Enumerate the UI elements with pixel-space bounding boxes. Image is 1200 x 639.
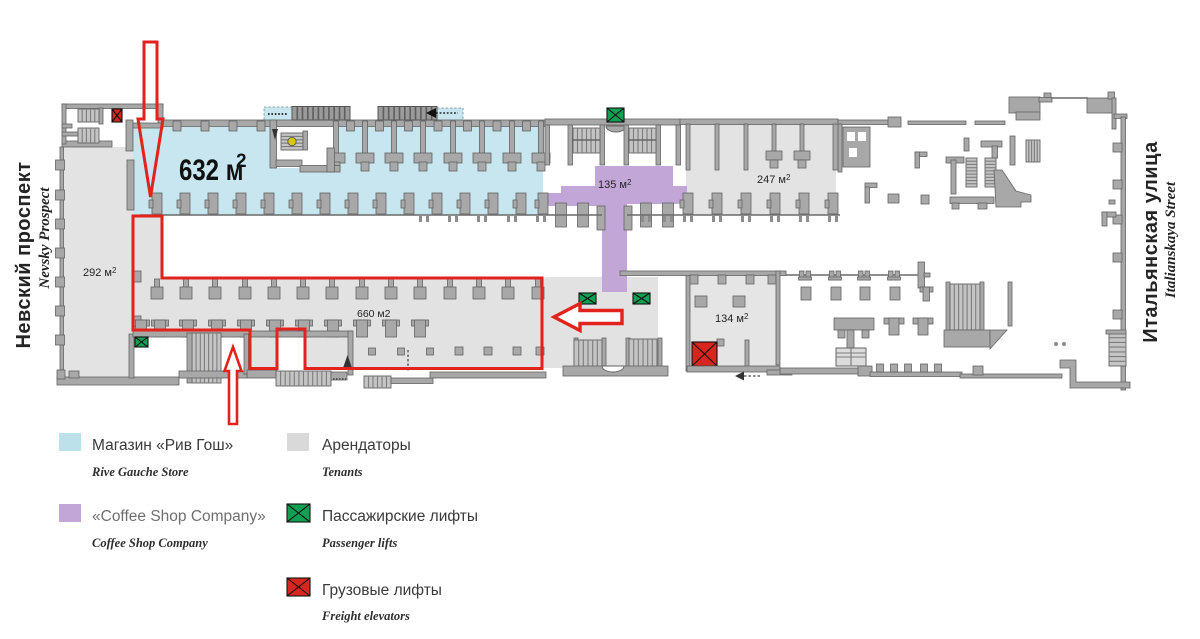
svg-text:Арендаторы: Арендаторы [322,437,411,454]
svg-text:Nevsky Prospect: Nevsky Prospect [37,187,53,290]
svg-text:Italianskaya Street: Italianskaya Street [1163,181,1179,299]
svg-text:Freight elevators: Freight elevators [321,609,410,623]
svg-text:292 м2: 292 м2 [83,266,117,279]
svg-text:Coffee Shop Company: Coffee Shop Company [92,536,208,550]
svg-text:Невский проспект: Невский проспект [13,161,35,348]
svg-text:632 м: 632 м [179,152,243,186]
svg-text:247 м2: 247 м2 [757,173,791,186]
svg-text:Грузовые лифты: Грузовые лифты [322,582,442,599]
svg-text:135 м2: 135 м2 [598,178,632,191]
svg-text:Пассажирские лифты: Пассажирские лифты [322,508,478,525]
svg-text:2: 2 [236,151,247,172]
svg-text:Итальянская улица: Итальянская улица [1140,141,1162,343]
svg-text:134 м2: 134 м2 [715,312,749,325]
svg-text:Rive Gauche Store: Rive Gauche Store [91,465,189,479]
svg-text:«Coffee Shop Company»: «Coffee Shop Company» [92,508,266,525]
svg-text:Passenger lifts: Passenger lifts [322,536,397,550]
svg-text:Магазин «Рив Гош»: Магазин «Рив Гош» [92,437,233,454]
svg-text:Tenants: Tenants [322,465,363,479]
svg-text:660 м2: 660 м2 [357,308,391,320]
